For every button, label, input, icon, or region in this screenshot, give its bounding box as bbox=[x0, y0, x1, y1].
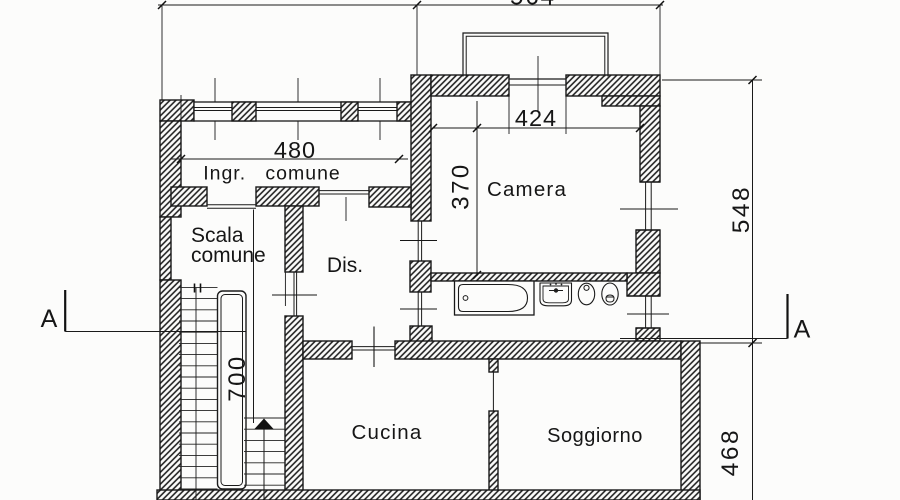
svg-text:Dis.: Dis. bbox=[327, 254, 363, 277]
svg-text:564: 564 bbox=[510, 0, 556, 11]
svg-text:A: A bbox=[794, 316, 811, 344]
svg-text:548: 548 bbox=[728, 185, 755, 233]
svg-text:Ingr. comune: Ingr. comune bbox=[203, 163, 341, 185]
svg-text:468: 468 bbox=[717, 428, 744, 476]
svg-text:Cucina: Cucina bbox=[351, 421, 422, 444]
svg-text:480: 480 bbox=[274, 137, 316, 163]
svg-text:Camera: Camera bbox=[487, 178, 567, 201]
svg-text:comune: comune bbox=[191, 244, 266, 267]
svg-text:Soggiorno: Soggiorno bbox=[547, 425, 643, 447]
svg-text:700: 700 bbox=[224, 354, 251, 402]
svg-text:A: A bbox=[41, 305, 58, 333]
svg-text:424: 424 bbox=[515, 105, 557, 131]
svg-text:370: 370 bbox=[448, 162, 475, 210]
